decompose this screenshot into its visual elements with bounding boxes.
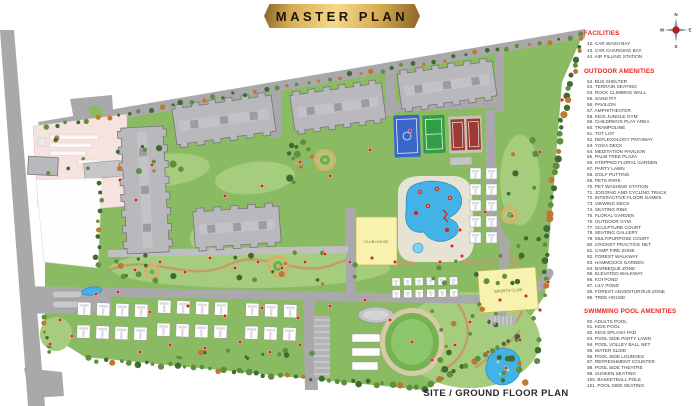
- tree: [319, 376, 325, 382]
- tree: [355, 381, 361, 387]
- tree: [390, 66, 394, 70]
- tree: [542, 270, 547, 275]
- tree: [495, 345, 499, 349]
- tree: [226, 349, 230, 353]
- amenity-marker: [158, 260, 162, 264]
- tree: [240, 370, 244, 374]
- tree: [353, 275, 357, 279]
- tree: [98, 245, 102, 249]
- tree: [439, 328, 443, 332]
- tree: [261, 353, 264, 356]
- tree: [551, 185, 557, 191]
- tree: [535, 347, 542, 354]
- tree: [553, 162, 560, 169]
- tree: [545, 253, 549, 257]
- legend-section-facilities: FACILITIES 42. CAR WASH BAY43. CAR CHARG…: [584, 30, 696, 61]
- tree: [96, 227, 101, 232]
- tree: [233, 256, 237, 260]
- tree: [542, 257, 549, 264]
- amenity-marker: [280, 266, 284, 270]
- amenity-marker: [233, 266, 237, 270]
- tree: [220, 367, 226, 373]
- tree: [135, 361, 142, 368]
- amenity-marker: [498, 298, 502, 302]
- tree: [472, 49, 477, 54]
- tree: [411, 61, 416, 66]
- tree: [291, 157, 295, 161]
- tree: [531, 316, 536, 321]
- tree: [507, 192, 511, 196]
- amenity-marker: [256, 260, 260, 264]
- tree: [550, 195, 554, 199]
- tree: [515, 44, 519, 48]
- tree: [543, 225, 550, 232]
- tree: [399, 63, 403, 67]
- tree: [300, 139, 306, 145]
- tree: [152, 160, 156, 164]
- tree: [285, 84, 288, 87]
- tree: [516, 366, 522, 372]
- amenity-marker: [303, 260, 307, 264]
- tree: [532, 151, 539, 158]
- tree: [309, 378, 312, 381]
- tree: [366, 379, 371, 384]
- compass-n: N: [674, 12, 677, 17]
- tree: [253, 90, 257, 94]
- tree: [557, 138, 564, 145]
- parking-bay: [314, 316, 330, 378]
- tree: [536, 337, 541, 342]
- tree: [498, 254, 502, 258]
- amenity-marker: [296, 316, 300, 320]
- amenity-marker: [348, 260, 352, 264]
- amenity-marker: [538, 150, 542, 154]
- tree: [547, 40, 552, 45]
- tree: [559, 118, 563, 122]
- tree: [152, 278, 158, 284]
- tree: [515, 279, 520, 284]
- tree: [559, 125, 564, 130]
- tree: [310, 155, 314, 159]
- tree: [536, 237, 541, 242]
- tree: [231, 91, 234, 94]
- tree: [45, 336, 48, 339]
- tree: [516, 244, 520, 248]
- parking-bay: [488, 316, 516, 325]
- tree: [198, 349, 204, 355]
- amenity-marker: [450, 244, 454, 248]
- tree: [316, 278, 320, 282]
- master-plan-page: CLUB HOUSE SPORTS CLUB N E S W MASTER PL…: [0, 0, 696, 406]
- tree: [169, 161, 176, 168]
- amenity-marker: [504, 366, 508, 370]
- tree: [477, 302, 481, 306]
- tree: [504, 47, 509, 52]
- legend-heading-facilities: FACILITIES: [584, 30, 696, 37]
- tree: [96, 115, 101, 120]
- amenity-marker: [408, 129, 412, 133]
- tree: [484, 278, 490, 284]
- tree: [295, 83, 299, 87]
- tree: [327, 379, 331, 383]
- tree: [82, 157, 85, 160]
- tree: [306, 147, 310, 151]
- tree: [94, 359, 98, 363]
- amenity-marker: [150, 163, 154, 167]
- title-banner: MASTER PLAN: [264, 4, 420, 28]
- tree: [156, 145, 162, 151]
- tree: [347, 71, 352, 76]
- tree: [436, 265, 441, 270]
- tree: [118, 263, 124, 269]
- tree: [557, 38, 560, 41]
- amenity-marker: [260, 184, 264, 188]
- tree: [114, 259, 118, 263]
- tree: [158, 363, 164, 369]
- tree: [475, 356, 481, 362]
- tree: [338, 77, 342, 81]
- tree: [121, 274, 126, 279]
- tree: [454, 260, 457, 263]
- tree: [374, 382, 380, 388]
- tree: [143, 148, 147, 152]
- tree: [451, 321, 456, 326]
- tree: [341, 380, 347, 386]
- tree: [422, 63, 426, 67]
- tree: [479, 306, 484, 311]
- legend-list-outdoor: 52. BUS SHELTER53. TERRAIN SEATING54. RO…: [584, 79, 696, 301]
- tree: [97, 181, 102, 186]
- amenity-marker: [560, 98, 564, 102]
- amenity-marker: [138, 350, 142, 354]
- tree: [506, 339, 510, 343]
- tree: [335, 379, 340, 384]
- tree: [359, 72, 362, 75]
- amenity-marker: [363, 298, 367, 302]
- tree: [512, 170, 518, 176]
- amenity-marker: [410, 340, 414, 344]
- tree: [126, 360, 132, 366]
- tree: [236, 275, 242, 281]
- amenity-marker: [546, 280, 550, 284]
- tree: [160, 104, 165, 109]
- tree: [502, 274, 507, 279]
- tree: [172, 103, 175, 106]
- tree: [351, 379, 355, 383]
- tree: [549, 177, 555, 183]
- amenity-marker: [370, 256, 374, 260]
- tree: [529, 137, 535, 143]
- tree: [54, 138, 58, 142]
- tree: [95, 234, 100, 239]
- amenity-marker: [186, 304, 190, 308]
- tree: [275, 85, 280, 90]
- tree: [96, 220, 100, 224]
- tree: [42, 314, 47, 319]
- legend-section-outdoor: OUTDOOR AMENITIES 52. BUS SHELTER53. TER…: [584, 68, 696, 301]
- amenity-marker: [510, 214, 514, 218]
- tree: [463, 363, 468, 368]
- tree: [565, 86, 570, 91]
- tree: [232, 370, 236, 374]
- tree: [170, 273, 176, 279]
- tree: [279, 271, 285, 277]
- tree: [141, 145, 144, 148]
- tree: [502, 371, 507, 376]
- tree: [496, 281, 500, 285]
- tree: [578, 49, 582, 53]
- tree: [107, 116, 112, 121]
- legend-item: 101. POOL SIDE SEATING: [587, 383, 696, 389]
- tree: [543, 293, 547, 297]
- tree: [284, 262, 287, 265]
- amenity-marker: [208, 256, 212, 260]
- tree: [548, 202, 554, 208]
- tree: [544, 233, 549, 238]
- legend-heading-outdoor: OUTDOOR AMENITIES: [584, 68, 696, 75]
- kids-pool: [413, 243, 423, 253]
- tree: [436, 376, 442, 382]
- tree: [468, 332, 472, 336]
- tree: [183, 365, 186, 368]
- tree: [120, 359, 124, 363]
- tree: [537, 41, 541, 45]
- amenity-marker: [483, 210, 487, 214]
- tree: [63, 121, 67, 125]
- tree: [301, 375, 305, 379]
- amenity-marker: [94, 292, 98, 296]
- amenity-marker: [438, 260, 442, 264]
- amenity-marker: [238, 340, 242, 344]
- tree: [277, 352, 281, 356]
- tree: [519, 253, 525, 259]
- tree: [243, 93, 247, 97]
- tree: [573, 57, 579, 63]
- tree: [522, 379, 529, 386]
- tree: [560, 111, 567, 118]
- amenity-marker: [468, 320, 472, 324]
- legend-item: 89. TREE HOUSE: [587, 295, 696, 301]
- amenity-marker: [430, 358, 434, 362]
- tree: [149, 108, 154, 113]
- amenity-marker: [48, 342, 52, 346]
- tree: [511, 152, 515, 156]
- amenity-marker: [458, 228, 462, 232]
- tree: [136, 271, 142, 277]
- tree: [264, 87, 269, 92]
- tree: [444, 345, 448, 349]
- tree: [84, 119, 89, 124]
- tree: [294, 375, 298, 379]
- tree: [505, 356, 511, 362]
- tree: [293, 250, 297, 254]
- tree: [446, 350, 452, 356]
- tree: [278, 373, 283, 378]
- tree: [43, 331, 46, 334]
- amenity-marker: [486, 350, 490, 354]
- tree: [441, 366, 448, 373]
- vacant-parcel: [36, 178, 102, 268]
- tree: [579, 37, 583, 41]
- tree: [200, 365, 205, 370]
- tree: [464, 53, 467, 56]
- tree: [221, 96, 224, 99]
- tree: [98, 209, 103, 214]
- tree: [510, 281, 514, 285]
- tree: [390, 382, 396, 388]
- plan-caption: SITE / GROUND FLOOR PLAN: [406, 388, 586, 399]
- tree: [564, 105, 570, 111]
- tree: [260, 374, 264, 378]
- amenity-marker: [298, 343, 302, 347]
- tree: [555, 155, 562, 162]
- tree: [543, 242, 548, 247]
- tree: [96, 262, 102, 268]
- tree: [144, 264, 148, 268]
- tree: [528, 43, 531, 46]
- tree: [397, 382, 403, 388]
- tree: [152, 169, 155, 172]
- tree: [208, 367, 212, 371]
- tree: [252, 277, 257, 282]
- amenity-marker: [368, 148, 372, 152]
- tree: [577, 45, 581, 49]
- tree: [556, 149, 561, 154]
- tree: [191, 365, 197, 371]
- tree: [568, 73, 573, 78]
- amenity-marker: [70, 334, 74, 338]
- tree: [128, 112, 132, 116]
- tree: [317, 79, 320, 82]
- tree: [557, 131, 563, 137]
- tree: [501, 378, 505, 382]
- amenity-marker: [323, 252, 327, 256]
- page-title: MASTER PLAN: [276, 9, 408, 24]
- tree: [93, 255, 99, 261]
- tree: [534, 358, 540, 364]
- tree: [271, 270, 274, 273]
- tree: [443, 59, 446, 62]
- tree: [474, 272, 479, 277]
- amenity-marker: [223, 194, 227, 198]
- tree: [451, 54, 455, 58]
- tree: [210, 94, 215, 99]
- tree: [175, 363, 181, 369]
- amenity-marker: [388, 318, 392, 322]
- amenity-marker: [133, 268, 137, 272]
- tree: [289, 143, 294, 148]
- tree: [246, 369, 253, 376]
- tree: [308, 81, 311, 84]
- tree: [494, 312, 498, 316]
- tree: [136, 109, 140, 113]
- tree: [178, 100, 183, 105]
- tree: [380, 381, 384, 385]
- tree: [573, 63, 578, 68]
- tree: [517, 361, 522, 366]
- amenity-marker: [518, 338, 522, 342]
- amenity-marker: [260, 306, 264, 310]
- amenity-marker: [183, 270, 187, 274]
- tree: [178, 167, 183, 172]
- tree: [431, 276, 435, 280]
- tree: [168, 362, 172, 366]
- tree: [573, 69, 578, 74]
- tree: [427, 381, 434, 388]
- tree: [431, 60, 436, 65]
- tree: [471, 314, 475, 318]
- tree: [451, 369, 455, 373]
- tree: [502, 342, 506, 346]
- tree: [202, 98, 207, 103]
- tree: [215, 368, 221, 374]
- amenity-marker: [58, 318, 62, 322]
- tree: [442, 280, 447, 285]
- tree: [117, 166, 122, 171]
- tree: [179, 356, 182, 359]
- tree: [578, 32, 583, 37]
- amenity-marker: [538, 308, 542, 312]
- club-house-label: CLUB HOUSE: [364, 240, 389, 244]
- tree: [66, 167, 70, 171]
- tree: [532, 186, 536, 190]
- amenity-marker: [524, 294, 528, 298]
- legend-item: 44. AIR FILLING STATION: [587, 54, 696, 61]
- sports-club-building: SPORTS CLUB: [478, 267, 539, 313]
- tree: [145, 361, 149, 365]
- tree: [245, 355, 248, 358]
- tree: [143, 253, 148, 258]
- tree: [294, 145, 298, 149]
- tree: [493, 322, 498, 327]
- amenity-marker: [118, 178, 122, 182]
- tree: [495, 48, 499, 52]
- tree: [437, 357, 443, 363]
- tree: [41, 320, 46, 325]
- tree: [189, 100, 194, 105]
- tree: [44, 124, 49, 129]
- amenity-marker: [298, 160, 302, 164]
- tree: [136, 168, 142, 174]
- legend-panel: FACILITIES 42. CAR WASH BAY43. CAR CHARG…: [584, 30, 696, 396]
- tree: [285, 373, 290, 378]
- tree: [76, 120, 80, 124]
- legend-heading-pool: SWIMMING POOL AMENITIES: [584, 308, 696, 315]
- amenity-marker: [453, 343, 457, 347]
- amenity-marker: [328, 174, 332, 178]
- tree: [485, 48, 490, 53]
- tree: [321, 282, 324, 285]
- tree: [368, 69, 373, 74]
- tree: [490, 348, 495, 353]
- tree: [176, 356, 179, 359]
- external-road: [0, 30, 45, 406]
- amenity-marker: [328, 304, 332, 308]
- amenity-marker: [203, 346, 207, 350]
- tree: [287, 151, 291, 155]
- amenity-marker: [116, 290, 120, 294]
- legend-list-pool: 90. ADULTS POOL91. KIDS POOL92. KIDS SPL…: [584, 319, 696, 389]
- tree: [98, 190, 102, 194]
- amenity-marker: [134, 198, 138, 202]
- amenity-marker: [393, 260, 397, 264]
- tree: [151, 362, 155, 366]
- tree: [309, 351, 314, 356]
- legend-list-facilities: 42. CAR WASH BAY43. CAR CHARGING BAY44. …: [584, 41, 696, 61]
- tree: [55, 124, 59, 128]
- tree: [104, 357, 109, 362]
- tree: [268, 373, 275, 380]
